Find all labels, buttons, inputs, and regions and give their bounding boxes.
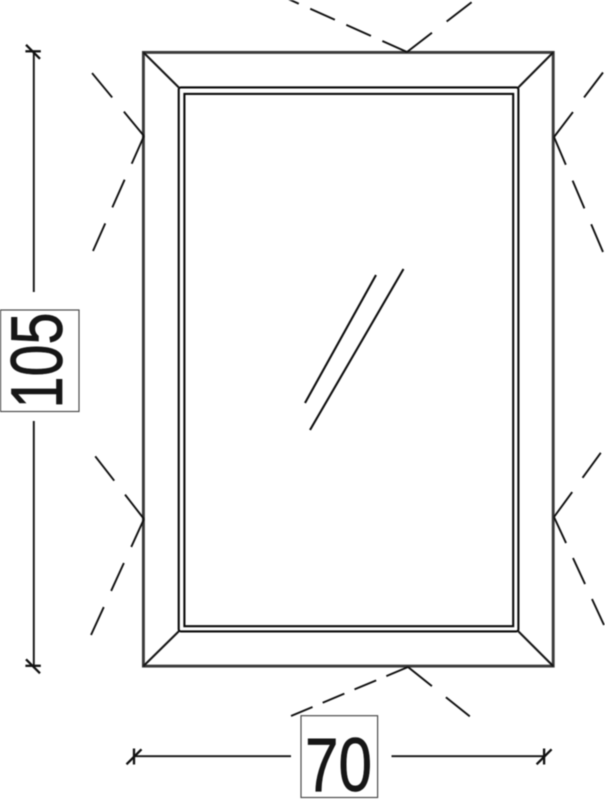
svg-text:70: 70 bbox=[305, 723, 372, 800]
svg-text:105: 105 bbox=[0, 313, 78, 409]
